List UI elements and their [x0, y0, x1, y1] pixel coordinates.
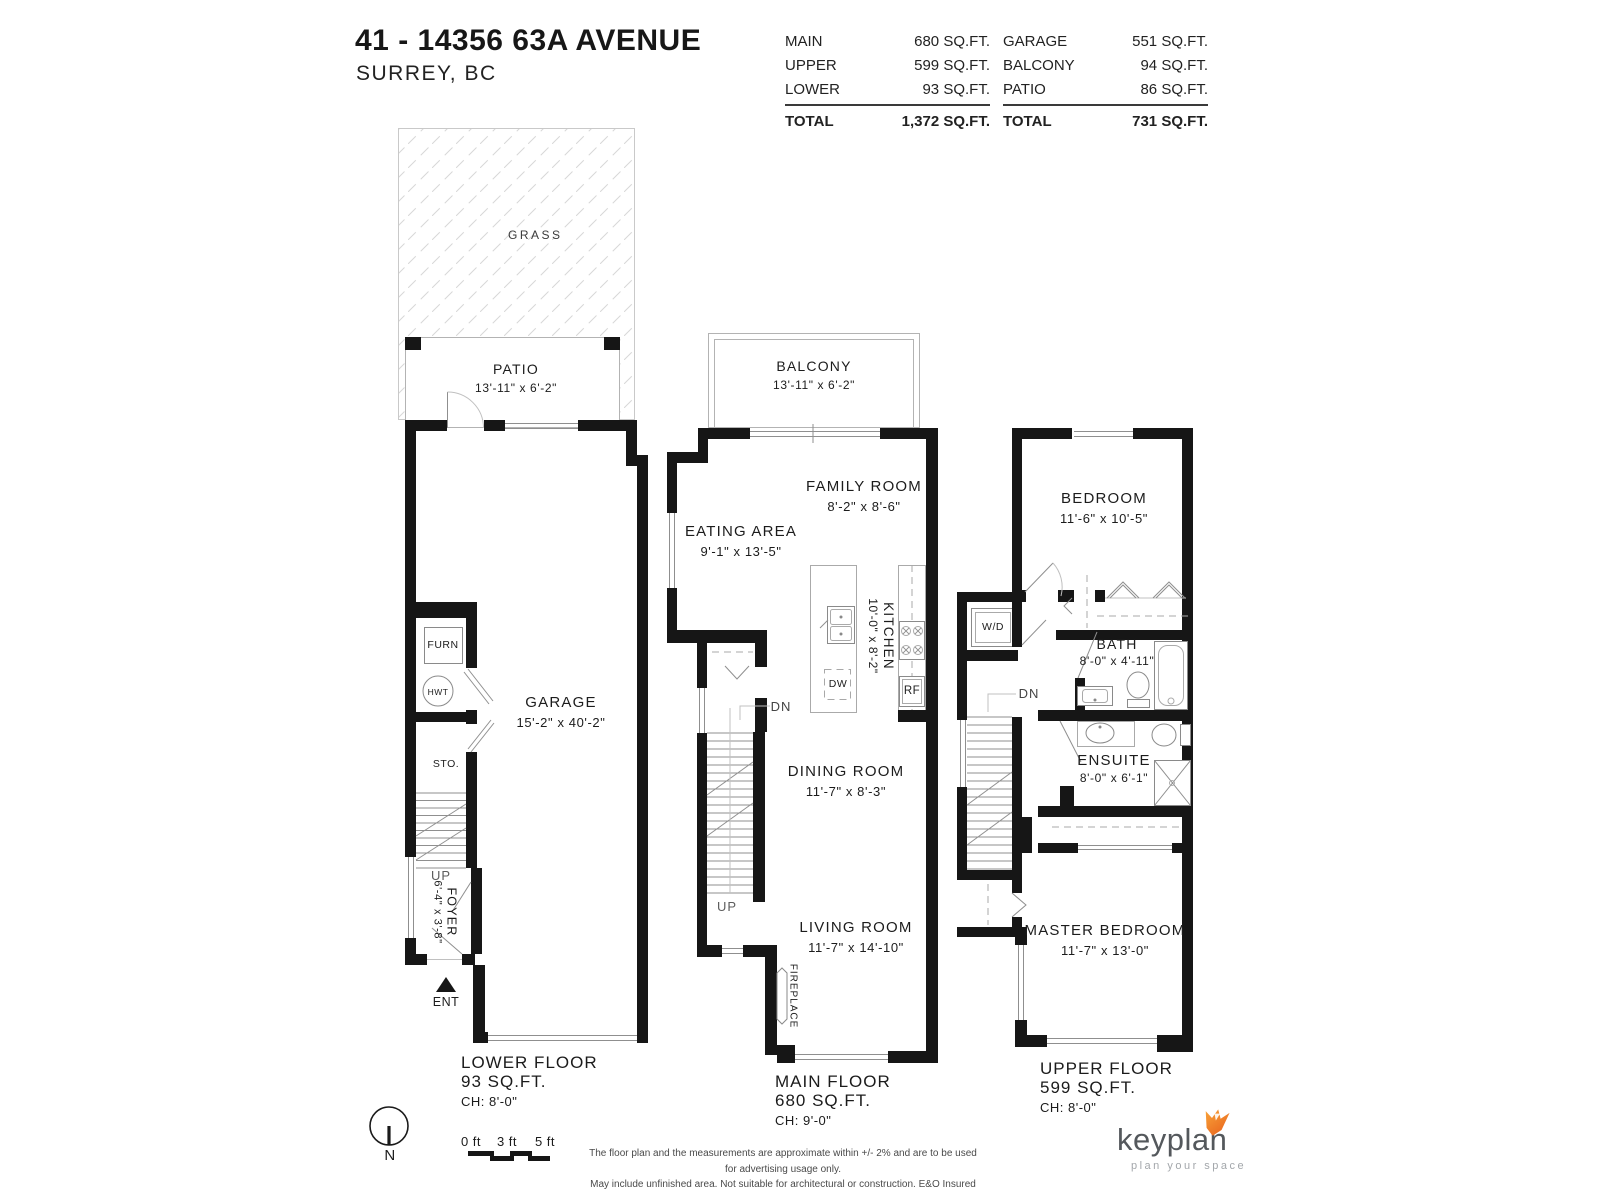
upper-stairs [967, 717, 1012, 877]
entry-arrow [436, 977, 456, 992]
hot-water-tank [423, 676, 453, 706]
ensuite-toilet [1152, 724, 1176, 746]
fireplace-shape [777, 968, 787, 1024]
furnace-box [425, 628, 463, 664]
patio-area [406, 338, 620, 428]
master-door-chevron [1012, 893, 1026, 917]
floor-plan-drawing [0, 0, 1600, 1200]
upper-floor-plan [957, 428, 1193, 1052]
washer-dryer [972, 609, 1015, 647]
north-arrow [370, 1107, 408, 1145]
refrigerator [900, 677, 925, 707]
landing-door-chevron [725, 666, 749, 679]
dishwasher [825, 670, 851, 700]
lower-stairs [416, 793, 466, 868]
bath-toilet [1127, 672, 1149, 698]
dn-leader-line [988, 694, 1016, 712]
bedroom-door-leaf [1025, 563, 1053, 592]
scale-bar [468, 1151, 550, 1161]
lower-floor-plan [399, 129, 649, 1044]
balcony-area [709, 334, 920, 428]
foyer-door-leaf [452, 882, 471, 912]
floorplan-page: 41 - 14356 63A AVENUE SURREY, BC MAIN680… [0, 0, 1600, 1200]
entry-door-leaf [432, 928, 462, 954]
bathtub [1155, 642, 1188, 710]
main-floor-plan [667, 334, 938, 1064]
